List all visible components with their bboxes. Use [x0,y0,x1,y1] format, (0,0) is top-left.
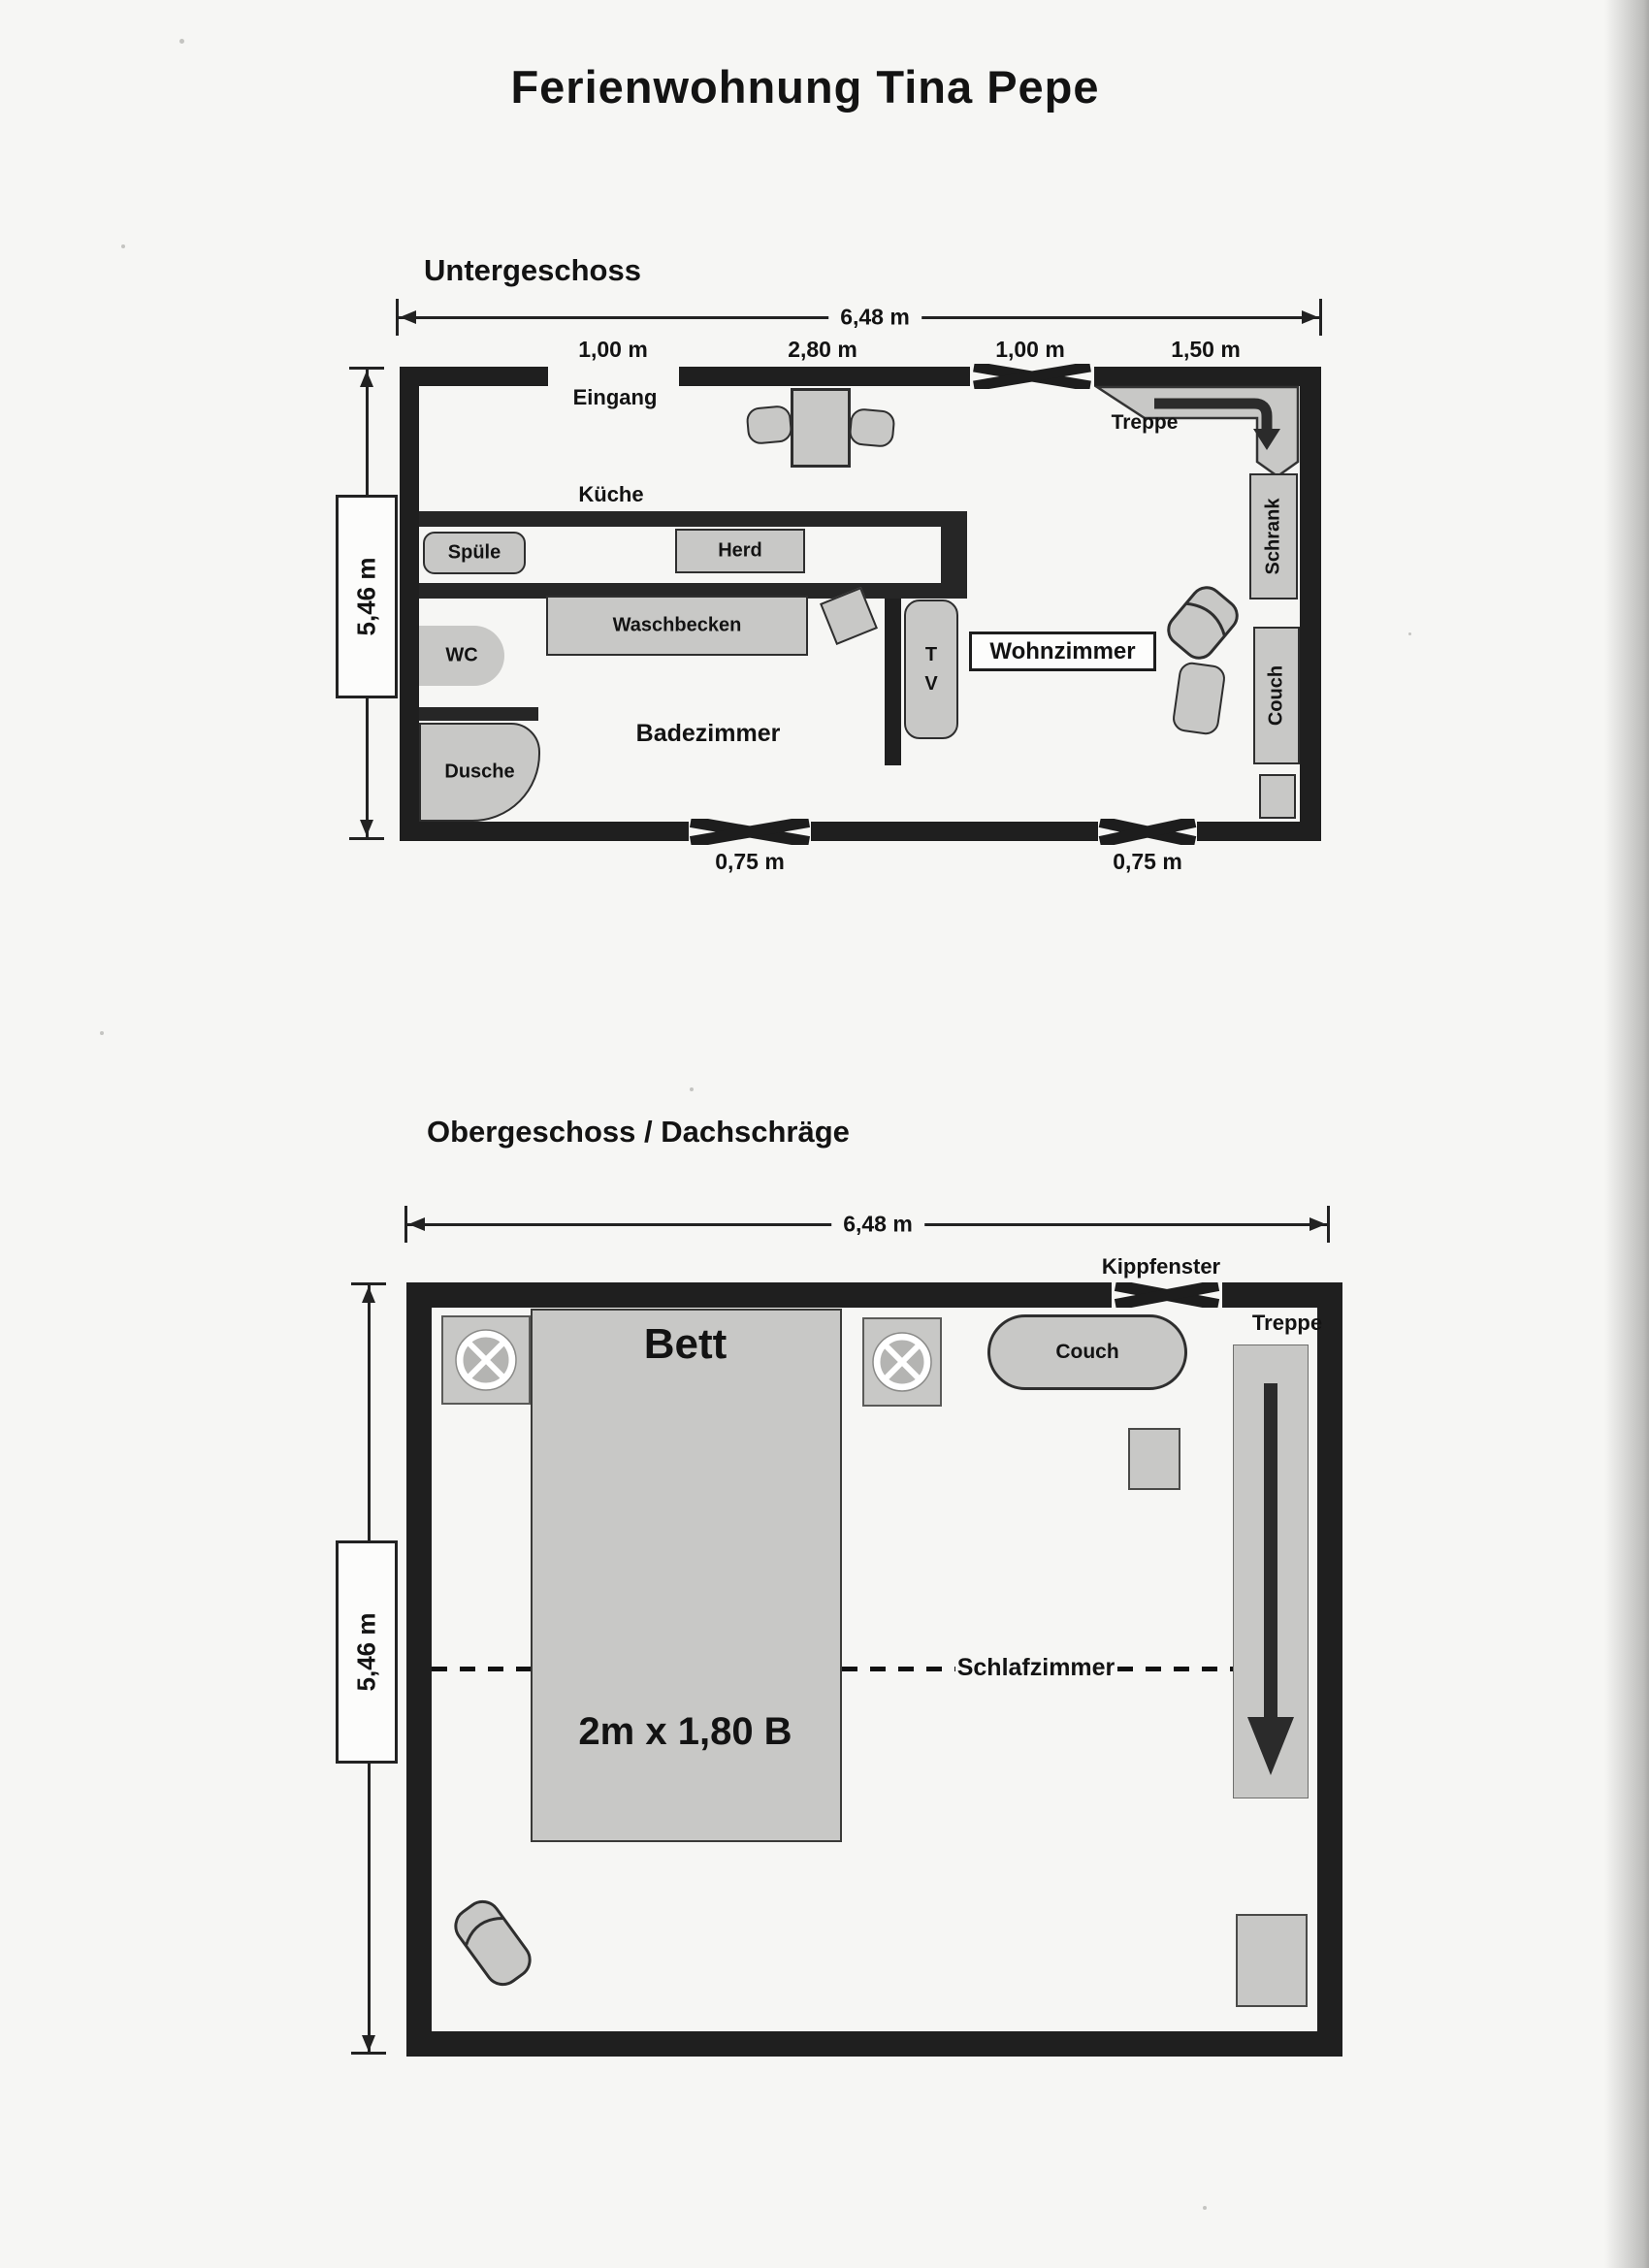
tv: T V [904,599,958,739]
washbasin: Waschbecken [546,596,808,656]
wardrobe: Schrank [1249,473,1298,599]
kitchen-label: Küche [563,483,660,507]
dimension-arrow [362,2035,375,2052]
tv-label-t: T [924,640,937,669]
scan-speck [1203,2206,1207,2210]
window-width-label: 0,75 m [1099,850,1196,875]
wall-top [400,367,548,386]
dimension-label-width-og: 6,48 m [831,1212,924,1238]
dimension-arrow [360,371,373,387]
toilet: WC [419,626,504,686]
roof-slope-line [1117,1667,1233,1671]
segment-label-entrance-width: 1,00 m [565,338,662,363]
tilt-window-symbol [1114,1282,1220,1308]
dimension-label-width-ug: 6,48 m [828,305,921,331]
dimension-box-height-og: 5,46 m [336,1540,398,1764]
segment-label-window-width: 1,00 m [982,338,1079,363]
couch-upper: Couch [987,1314,1187,1390]
couch-lower: Couch [1253,627,1300,764]
scanned-floorplan-page: Ferienwohnung Tina Pepe Untergeschoss 6,… [0,0,1649,2268]
washbasin-label: Waschbecken [613,615,742,637]
segment-label-wall2-width: 1,50 m [1157,338,1254,363]
scan-speck [121,244,125,248]
wall-left [406,1282,432,2057]
wall-top [406,1282,1112,1308]
kitchen-wall-top [419,511,967,527]
scan-speck [1408,632,1411,635]
dimension-tick [351,2052,386,2055]
segment-label-wall-width: 2,80 m [774,338,871,363]
dimension-label-height-ug: 5,46 m [352,558,382,636]
dining-table [791,388,851,468]
bed-label: Bett [533,1320,838,1368]
entrance-label: Eingang [557,386,673,410]
stove-label: Herd [718,540,762,563]
scan-speck [690,1087,694,1091]
tilt-window-label: Kippfenster [1083,1255,1239,1280]
dimension-arrow [400,310,416,324]
window-width-label: 0,75 m [701,850,798,875]
wall-top [1094,367,1321,386]
shower: Dusche [419,723,540,822]
dimension-box-height-ug: 5,46 m [336,495,398,698]
living-room-box: Wohnzimmer [969,632,1156,671]
floor-title-upper: Obergeschoss / Dachschräge [427,1116,850,1150]
tv-label-v: V [924,669,937,698]
scan-speck [179,39,184,44]
wall-left [400,367,419,841]
stairs-down-arrow [1233,1345,1309,1798]
kitchen-sink-label: Spüle [448,542,501,565]
roof-window [441,1315,531,1405]
cabinet-upper [1236,1914,1308,2007]
couch-lower-label: Couch [1266,665,1288,726]
wall-bottom [811,822,1098,841]
dimension-arrow [408,1217,425,1231]
scan-speck [100,1031,104,1035]
scan-edge-band [1604,0,1649,2268]
wall-top [679,367,970,386]
dining-chair [745,405,792,445]
stove: Herd [675,529,805,573]
bedroom-label: Schlafzimmer [939,1654,1133,1681]
dimension-arrow [1302,310,1318,324]
side-table-upper [1128,1428,1180,1490]
window-symbol-bottom-left [689,819,811,845]
roof-slope-line [432,1667,531,1671]
dimension-label-height-og: 5,46 m [352,1613,382,1692]
wardrobe-label: Schrank [1263,499,1285,575]
dimension-tick [349,837,384,840]
roof-window [862,1317,942,1407]
chair-upper [436,1877,553,2013]
toilet-label: WC [445,645,477,667]
stairs-label-lower: Treppe [1101,411,1188,435]
dining-chair [848,407,895,448]
bed-size-label: 2m x 1,80 B [533,1710,838,1754]
living-room-label: Wohnzimmer [989,638,1135,665]
wall-bottom [406,2031,1342,2057]
dimension-arrow [1309,1217,1326,1231]
dimension-arrow [362,1286,375,1303]
wall-right [1300,367,1321,841]
dimension-tick [1319,299,1322,336]
page-title: Ferienwohnung Tina Pepe [504,62,1106,113]
stairs-label-upper: Treppe [1244,1312,1331,1336]
wall-right [1317,1282,1342,2057]
floor-title-lower: Untergeschoss [424,254,641,288]
bathroom-label: Badezimmer [611,720,805,747]
shower-label: Dusche [444,761,514,784]
dimension-tick [349,367,384,370]
dimension-tick [404,1206,407,1243]
wall-bottom [400,822,689,841]
bed: Bett 2m x 1,80 B [531,1309,842,1842]
side-table [1259,774,1296,819]
dimension-tick [396,299,399,336]
window-symbol-bottom-right [1098,819,1197,845]
couch-upper-label: Couch [1055,1341,1118,1364]
divider-wall [885,599,901,765]
dimension-tick [1327,1206,1330,1243]
chair [1171,661,1227,736]
dimension-tick [351,1282,386,1285]
dimension-arrow [360,820,373,836]
wall-bottom [1197,822,1321,841]
kitchen-wall-end [941,511,967,599]
kitchen-sink: Spüle [423,532,526,574]
window-symbol-top [972,364,1092,389]
shower-divider-wall [419,707,538,721]
